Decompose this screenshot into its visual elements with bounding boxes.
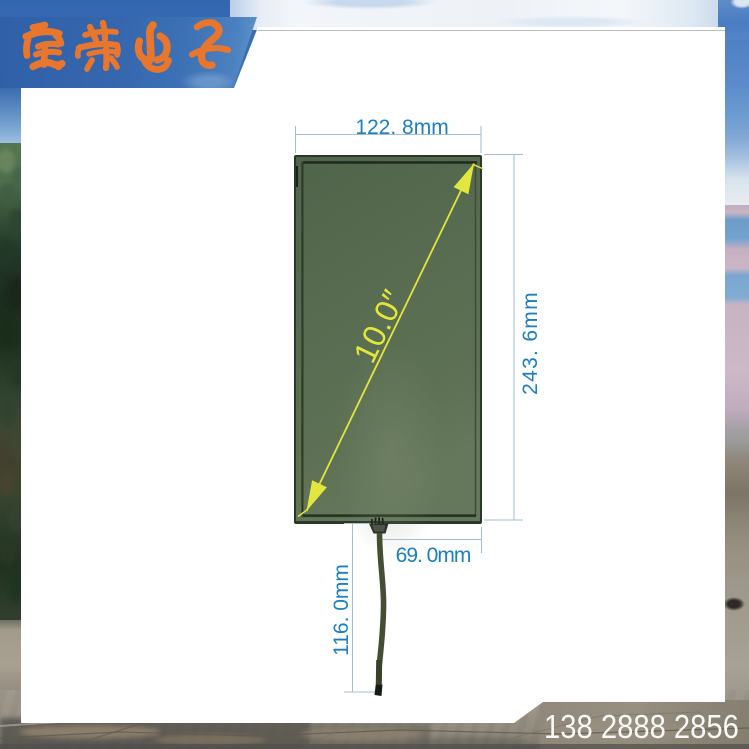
svg-text:116. 0mm: 116. 0mm: [330, 564, 353, 656]
svg-text:122. 8mm: 122. 8mm: [355, 116, 448, 139]
svg-text:243. 6mm: 243. 6mm: [519, 291, 542, 395]
svg-text:69. 0mm: 69. 0mm: [396, 544, 471, 567]
